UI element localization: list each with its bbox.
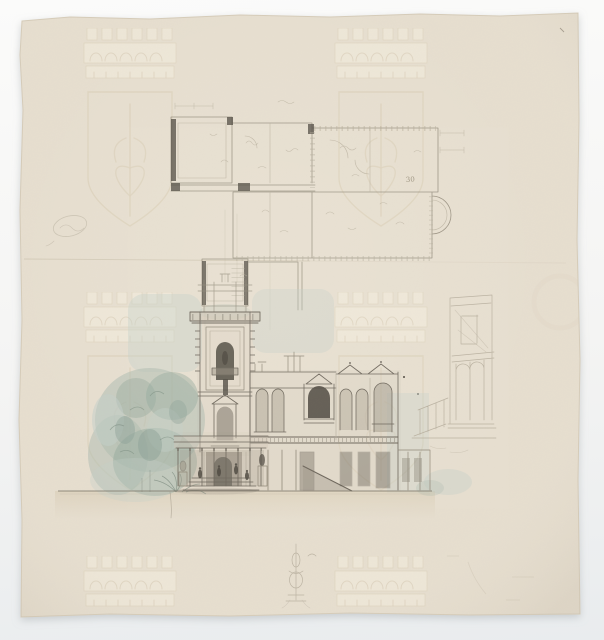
paper-vignette [20, 13, 582, 617]
scanned-drawing: 30 [0, 0, 604, 640]
drawing-sheet-svg: 30 [0, 0, 604, 640]
